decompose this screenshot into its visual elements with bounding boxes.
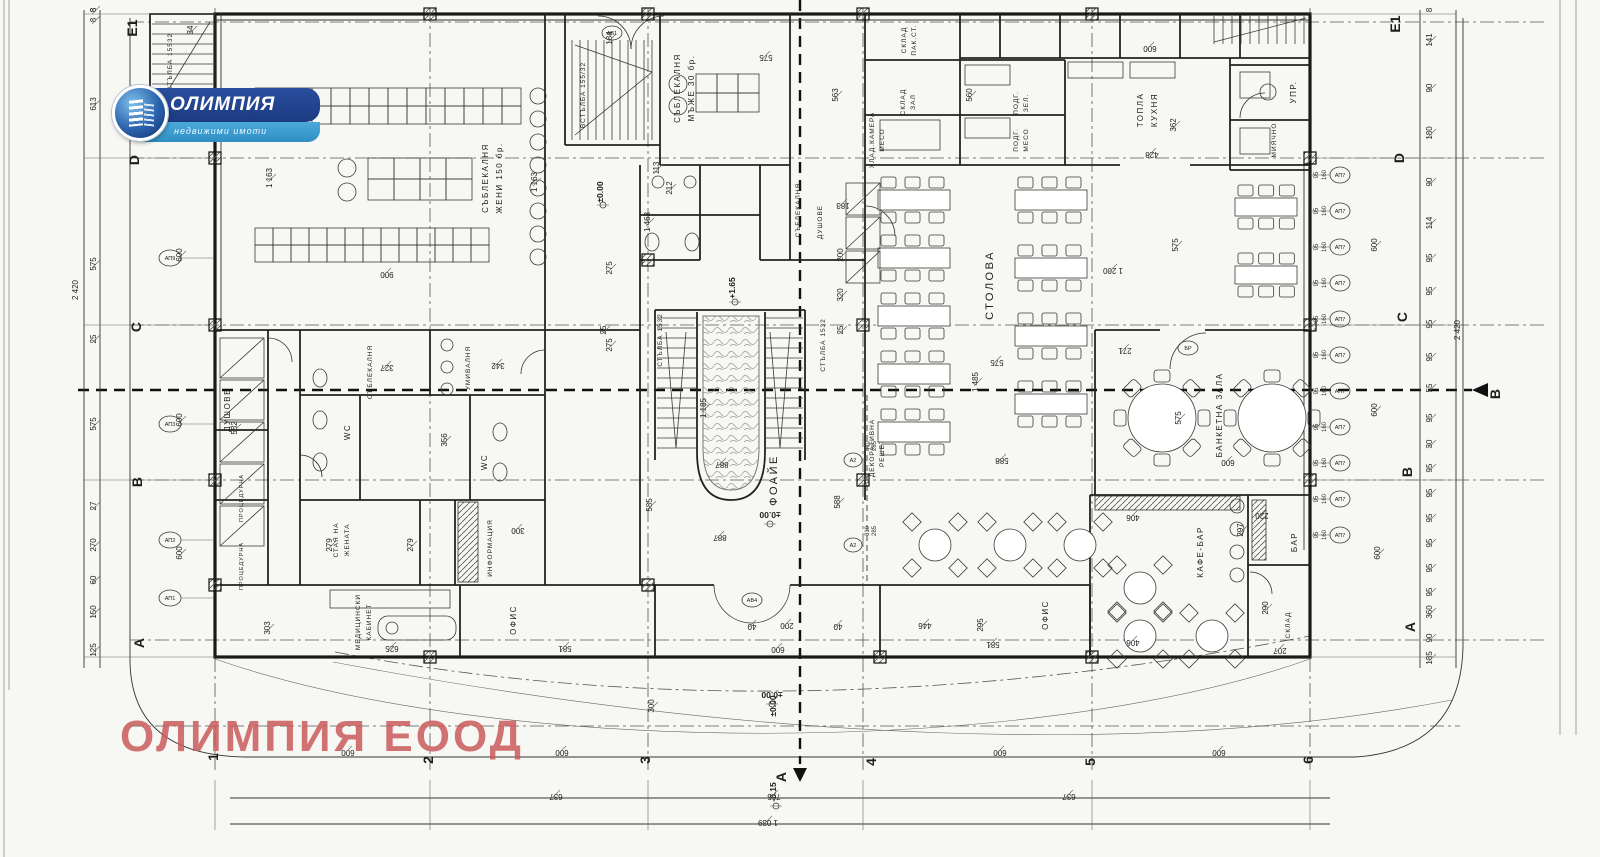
room-label-podg-meso-2: МЕСО <box>1023 128 1030 151</box>
door-dim: 285 <box>872 440 878 451</box>
room-label-wc-1: WC <box>343 424 352 440</box>
grid-row-b-left: В <box>129 477 145 487</box>
window-callout: АП7 <box>1335 461 1346 467</box>
window-dim: 160 <box>1322 277 1328 288</box>
dim-label: 428 <box>1145 150 1159 159</box>
dim-label: 581 <box>986 640 1000 649</box>
dim-label: 575 <box>759 53 773 62</box>
door-callout: А2 <box>850 458 857 464</box>
window-dim: 160 <box>1322 457 1328 468</box>
window-callout-left: АП3 <box>165 422 176 428</box>
grid-row-c-left: C <box>128 322 144 332</box>
window-callout: АП7 <box>1335 353 1346 359</box>
room-label-sklad-pak: СКЛАД <box>901 27 908 54</box>
door-dim: 310 <box>865 525 871 536</box>
agency-logo-building-icon <box>112 85 168 141</box>
room-label-locker-women-2: ЖЕНИ 150 бр. <box>495 142 504 213</box>
window-callout: АП7 <box>1335 173 1346 179</box>
room-label-ofis-right: ОФИС <box>1041 600 1050 630</box>
room-label-kitchen-2: КУХНЯ <box>1150 93 1159 127</box>
door-arcs <box>268 16 1272 623</box>
dim-total-right: 2 420 <box>1453 319 1462 340</box>
room-label-umivalnya: УМИВАЛНЯ <box>465 346 472 390</box>
grid-row-d-left: D <box>126 155 142 165</box>
room-label-staya-2: ЖЕНАТА <box>344 524 351 557</box>
room-label-staya: СТАЯ НА <box>333 522 340 557</box>
window-dim: 160 <box>1322 349 1328 360</box>
dim-label: 581 <box>558 644 572 653</box>
dim-label: 600 <box>771 645 785 654</box>
dim-label: 300 <box>511 526 525 535</box>
dim-label: 1 039 <box>757 818 778 827</box>
room-label-sklad-zal: СКЛАД <box>900 89 907 116</box>
dim-label: 327 <box>380 363 394 372</box>
elevation-zero-2: ±0.00 <box>759 510 780 520</box>
grid-col-4: 4 <box>863 758 879 766</box>
window-dim: 95 <box>1314 207 1320 214</box>
window-dim: 95 <box>1314 387 1320 394</box>
stair-label-central: СТЪЛБА 1532 <box>820 318 827 372</box>
room-label-stolova: СТОЛОВА <box>984 250 996 320</box>
entry-callout: АВ4 <box>747 598 757 604</box>
window-callout: АП7 <box>1335 533 1346 539</box>
room-label-kitchen: ТОПЛА <box>1136 93 1145 128</box>
watermark-text: ОЛИМПИЯ ЕООД <box>120 712 524 762</box>
dim-label: 207 <box>1273 646 1287 655</box>
dim-label: 600 <box>1143 44 1157 53</box>
dim-top8-right: 8 <box>1425 7 1434 12</box>
window-dim: 95 <box>1314 315 1320 322</box>
window-callout: АП7 <box>1335 209 1346 215</box>
window-dim: 160 <box>1322 169 1328 180</box>
window-callout: АП7 <box>1335 317 1346 323</box>
stair-label-top: ВСТЪЛБА 155/32 <box>580 62 587 128</box>
dim-label: 637 <box>549 792 563 801</box>
dim-label: 575 <box>990 358 1004 367</box>
grid-row-b-right: В <box>1399 467 1415 477</box>
window-dim: 95 <box>1314 279 1320 286</box>
window-dim: 160 <box>1322 205 1328 216</box>
window-callout: АП7 <box>1335 425 1346 431</box>
dim-label: 220 <box>1255 511 1269 520</box>
dim-label: 446 <box>918 621 932 630</box>
grid-row-a-left: А <box>131 638 147 648</box>
dim-label: 887 <box>715 460 729 469</box>
door-callout: А2 <box>850 543 857 549</box>
window-dim: 160 <box>1322 421 1328 432</box>
dim-label: 625 <box>385 644 399 653</box>
dim-label: 900 <box>380 270 394 279</box>
door-dim: 285 <box>872 525 878 536</box>
dim-label: 342 <box>491 361 505 370</box>
dim-label: 200 <box>780 621 794 630</box>
window-callout: АП7 <box>1335 497 1346 503</box>
elevation-zero-1: ±0.00 <box>595 181 605 202</box>
section-b-arrow <box>1472 383 1488 397</box>
dim-total-left: 2 420 <box>71 279 80 300</box>
room-label-procedurna-2: ПРОЦЕДУРНА <box>239 542 245 590</box>
room-label-upr: УПР. <box>1289 81 1298 104</box>
entry-callout: АВ1 <box>607 31 617 37</box>
agency-logo: ОЛИМПИЯ недвижими имоти <box>112 84 320 146</box>
stair-label-central-2: СТЪЛБА 1532 <box>657 313 664 367</box>
dim-label: 600 <box>555 748 569 757</box>
room-label-sublekalnya-center: СЪБЛЕКАЛНЯ <box>795 183 802 237</box>
dim-label: 183 <box>836 201 850 210</box>
room-label-informaciya: ИНФОРМАЦИЯ <box>487 519 494 577</box>
window-dim: 160 <box>1322 241 1328 252</box>
dim-label: 40 <box>747 622 756 631</box>
room-label-ofis-left: ОФИС <box>509 605 518 635</box>
window-dim: 160 <box>1322 529 1328 540</box>
grid-row-d-right: D <box>1391 153 1407 163</box>
room-label-miyachno: МИЯЧНО <box>1271 123 1278 158</box>
window-dim: 95 <box>1314 171 1320 178</box>
room-label-dushove-center: ДУШОВЕ <box>817 205 824 239</box>
section-b-label: В <box>1487 389 1503 399</box>
room-label-bar: БАР <box>1290 532 1299 552</box>
room-label-med: МЕДИЦИНСКИ <box>355 594 362 650</box>
grid-row-e1-left: Е1 <box>124 19 140 36</box>
dim-label: 887 <box>713 533 727 542</box>
room-label-med-2: КАБИНЕТ <box>366 603 373 640</box>
window-dim: 160 <box>1322 493 1328 504</box>
entry-callout: БР <box>1184 346 1192 352</box>
room-label-wc-2: WC <box>480 454 489 470</box>
dim-label: 406 <box>1126 513 1140 522</box>
window-callout: АП7 <box>1335 281 1346 287</box>
window-dim: 160 <box>1322 385 1328 396</box>
elevation-plus165: +1.65 <box>727 277 737 299</box>
window-callout: АП7 <box>1335 389 1346 395</box>
window-callout-left: АП1 <box>165 596 176 602</box>
grid-col-5: 5 <box>1082 758 1098 766</box>
grid-col-6: 6 <box>1300 756 1316 764</box>
room-label-locker-men: СЪБЛЕКАЛНЯ <box>673 53 682 123</box>
dim-label: 600 <box>1212 748 1226 757</box>
window-dim: 95 <box>1314 423 1320 430</box>
grid-col-3: 3 <box>637 756 653 764</box>
dim-label: 406 <box>1126 638 1140 647</box>
window-dim: 95 <box>1314 243 1320 250</box>
dim-label: 600 <box>993 748 1007 757</box>
grid-row-a-right: А <box>1402 622 1418 632</box>
room-label-sklad: СКЛАД <box>1285 612 1292 639</box>
room-label-sklad-pak-2: ПАК.СТ. <box>911 24 918 55</box>
dim-label: 271 <box>1118 346 1132 355</box>
window-dim: 95 <box>1314 495 1320 502</box>
dim-label: 40 <box>833 622 842 631</box>
grid-row-e1-right: Е1 <box>1387 15 1403 32</box>
room-label-podg-meso: ПОДГ. <box>1013 128 1020 152</box>
dim-label: 600 <box>1221 458 1235 467</box>
room-label-sklad-zal-2: ЗАЛ <box>910 94 917 110</box>
room-label-kafe-bar: КАФЕ-БАР <box>1196 526 1205 578</box>
room-label-podg-zel-2: ЗЕЛ. <box>1023 94 1030 112</box>
dim-label: 765 <box>767 792 781 801</box>
dim-label: 1 200 <box>1102 266 1123 275</box>
dim-label: 588 <box>995 456 1009 465</box>
door-dim: 310 <box>865 440 871 451</box>
room-label-locker-men-2: МЪЖЕ 30 бр. <box>687 55 696 122</box>
room-label-procedurna-1: ПРОЦЕДУРНА <box>239 474 245 522</box>
section-a-label: А <box>773 772 789 782</box>
stair-planter <box>703 316 759 490</box>
scanned-floor-plan: СЪБЛЕКАЛНЯ ЖЕНИ 150 бр. СЪБЛЕКАЛНЯ МЪЖЕ … <box>0 0 1600 857</box>
room-label-podg-zel: ПОДГ. <box>1013 91 1020 115</box>
window-callout-left: АП2 <box>165 538 176 544</box>
window-dim: 95 <box>1314 531 1320 538</box>
section-a-arrow <box>793 768 807 782</box>
window-callout-left: АП9 <box>165 256 176 262</box>
room-label-locker-women: СЪБЛЕКАЛНЯ <box>481 143 490 213</box>
window-dim: 95 <box>1314 459 1320 466</box>
window-dim: 160 <box>1322 313 1328 324</box>
dim-label: 637 <box>1062 792 1076 801</box>
room-label-banketna: БАНКЕТНА ЗАЛА <box>1215 373 1224 458</box>
room-label-kamera: ХЛАД.КАМЕРА <box>869 112 876 168</box>
window-dim: 95 <box>1314 351 1320 358</box>
room-label-sublekalnya-left: СЪБЛЕКАЛНЯ <box>367 345 374 399</box>
grid-row-c-right: C <box>1394 312 1410 322</box>
window-callout: АП7 <box>1335 245 1346 251</box>
room-label-foaie: ФОАЙЕ <box>767 454 780 506</box>
